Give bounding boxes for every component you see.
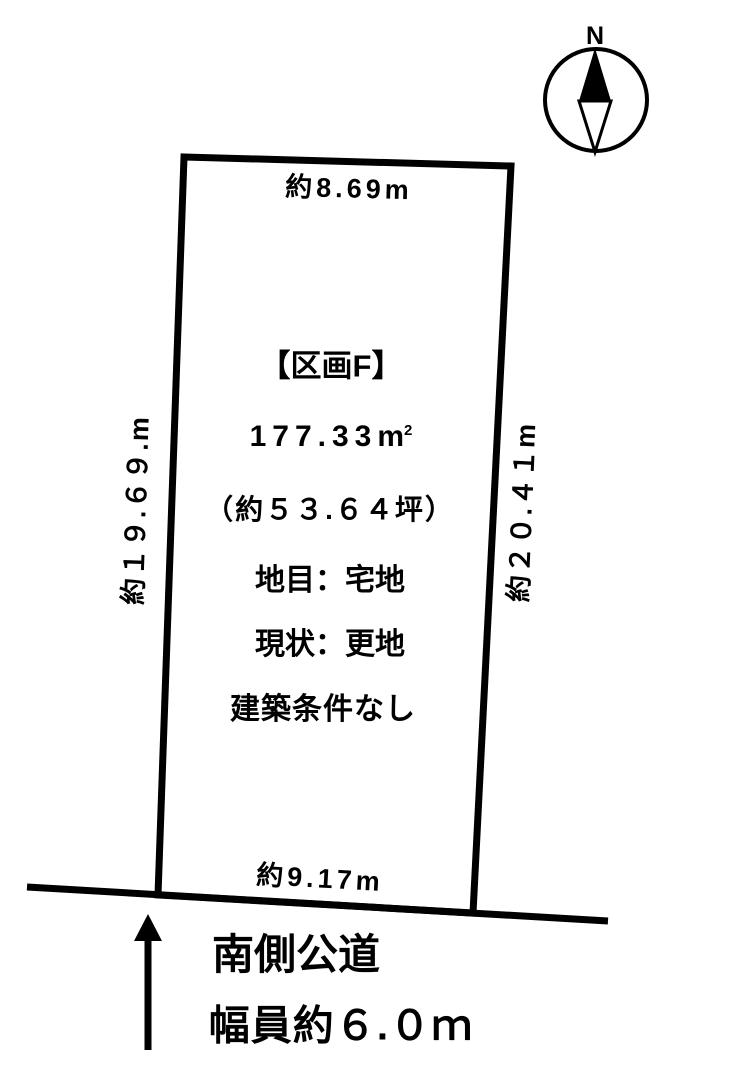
compass: N <box>545 22 647 152</box>
dimension-bottom: 約9.17m <box>256 862 385 896</box>
compass-needle-south <box>579 101 611 152</box>
dimension-left: 約１９.６９.m <box>120 415 154 606</box>
road-direction-arrow <box>134 914 162 1050</box>
compass-needle-north <box>579 48 611 101</box>
plot-land-category: 地目：宅地 <box>255 566 405 596</box>
plot-area-exponent: 2 <box>404 422 412 439</box>
north-label: N <box>586 22 604 50</box>
plot-area: 177.33m2 <box>250 422 413 452</box>
land-plot-diagram: N 約8.69m 約9.17m 約１９.６９.m 約２０.４１m 【区画F】 1… <box>0 0 740 1082</box>
plot-outline <box>158 157 511 913</box>
plot-building-condition: 建築条件なし <box>230 695 416 725</box>
road-name: 南側公道 <box>212 934 380 976</box>
arrow-up-icon <box>134 914 162 941</box>
plot-current-state: 現状：更地 <box>255 630 405 660</box>
plot-area-tsubo: （約５３.６４坪） <box>205 496 455 524</box>
diagram-lines: N <box>0 0 740 1082</box>
plot-title: 【区画F】 <box>260 351 403 382</box>
road-width: 幅員約６.０ｍ <box>209 1006 473 1047</box>
plot-area-unit: m <box>377 420 404 453</box>
plot-area-value: 177.33 <box>250 420 378 453</box>
dimension-top: 約8.69m <box>285 174 413 205</box>
